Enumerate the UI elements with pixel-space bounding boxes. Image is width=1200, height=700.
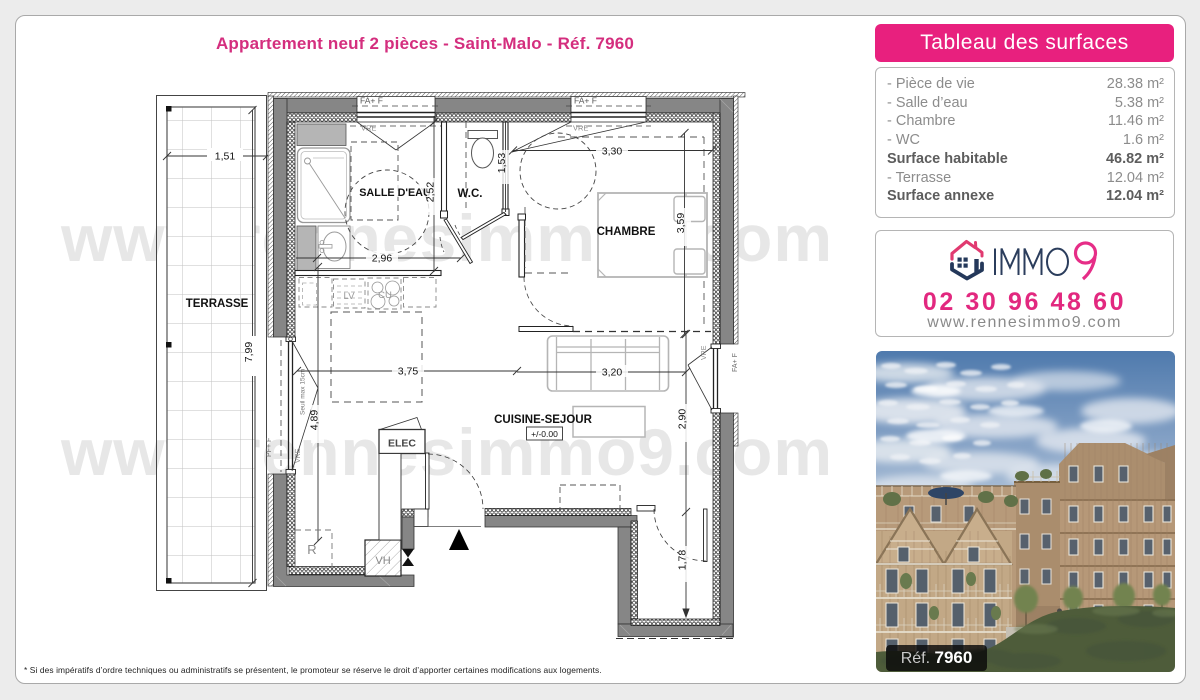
svg-text:FA+ F: FA+ F — [574, 96, 597, 106]
svg-text:3,30: 3,30 — [602, 146, 623, 158]
svg-text:ELEC: ELEC — [388, 438, 416, 450]
svg-text:CUISINE-SEJOUR: CUISINE-SEJOUR — [494, 414, 592, 426]
svg-text:SALLE D'EAU: SALLE D'EAU — [359, 187, 431, 199]
svg-text:2,52: 2,52 — [425, 182, 437, 203]
svg-text:1,78: 1,78 — [677, 550, 689, 571]
svg-text:VRE: VRE — [361, 124, 376, 133]
svg-text:3,59: 3,59 — [675, 213, 687, 234]
svg-text:VRE: VRE — [701, 345, 708, 360]
svg-text:7,99: 7,99 — [243, 342, 255, 363]
svg-text:VH: VH — [375, 555, 390, 567]
svg-text:FA+ F: FA+ F — [732, 353, 739, 372]
svg-text:3,75: 3,75 — [398, 366, 419, 378]
svg-text:2,90: 2,90 — [677, 409, 689, 430]
svg-text:VRE: VRE — [295, 448, 302, 463]
svg-text:PF+ F: PF+ F — [266, 438, 273, 457]
svg-text:CHAMBRE: CHAMBRE — [597, 226, 656, 238]
svg-text:CU: CU — [378, 290, 392, 301]
svg-text:LV: LV — [344, 291, 356, 302]
svg-text:+/-0.00: +/-0.00 — [531, 429, 558, 439]
svg-text:W.C.: W.C. — [458, 188, 483, 200]
svg-text:2,96: 2,96 — [372, 253, 393, 265]
svg-text:TERRASSE: TERRASSE — [186, 298, 249, 310]
svg-text:4,89: 4,89 — [309, 410, 321, 431]
svg-text:VRE: VRE — [573, 124, 588, 133]
svg-text:1,51: 1,51 — [215, 151, 236, 163]
svg-text:R: R — [307, 542, 316, 557]
svg-text:1,53: 1,53 — [496, 153, 508, 174]
svg-text:3,20: 3,20 — [602, 367, 623, 379]
svg-text:FA+ F: FA+ F — [360, 96, 383, 106]
svg-text:Seuil max 15cm: Seuil max 15cm — [300, 369, 307, 415]
